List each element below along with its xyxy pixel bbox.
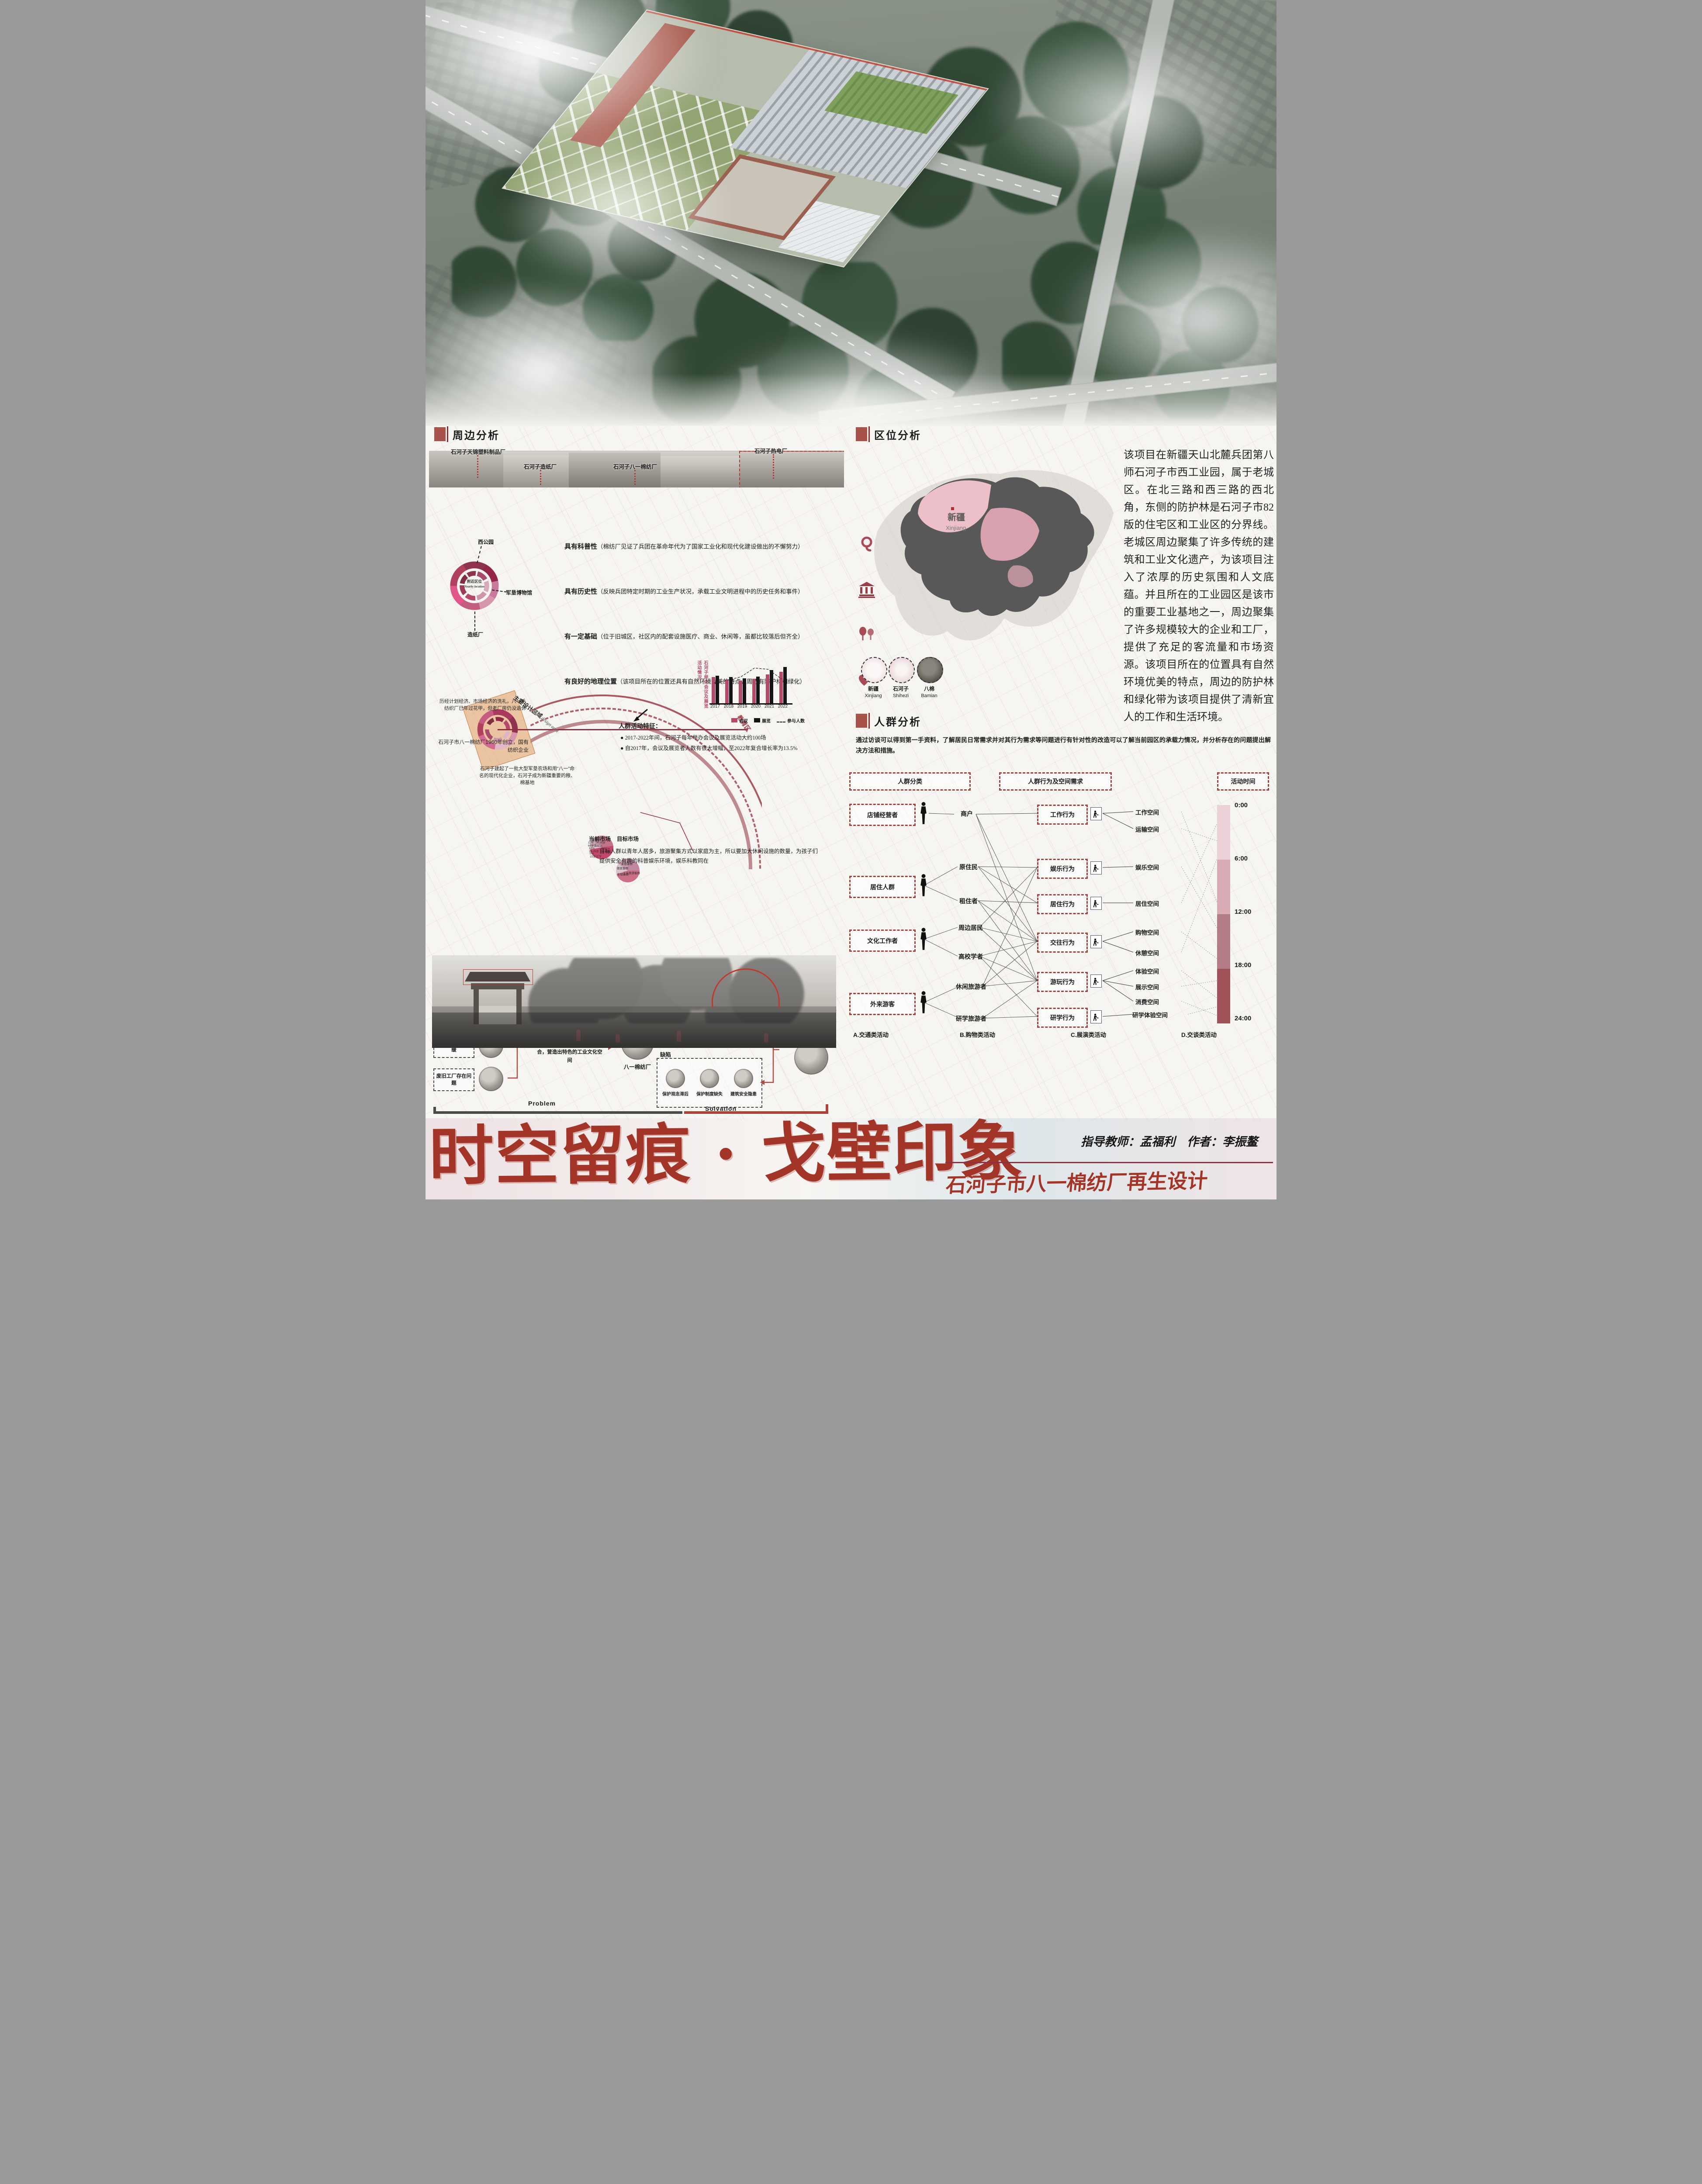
circle-label: 八棉Bamian	[914, 685, 944, 698]
header-square	[434, 427, 446, 441]
section-header-crowd: 人群分析	[856, 713, 921, 729]
space-transport: 运输空间	[1135, 825, 1159, 833]
skater-icon	[1090, 975, 1102, 988]
header-line	[868, 426, 870, 442]
map-label-cn: 新疆	[948, 512, 965, 522]
solvation-bar	[684, 1111, 828, 1114]
time-label: 6:00	[1235, 855, 1248, 862]
time-label: 18:00	[1235, 961, 1251, 969]
bayi-factory-label: 八一棉纺厂	[621, 1062, 654, 1071]
section-header-location: 区位分析	[856, 426, 921, 442]
person-icon	[918, 802, 929, 825]
role-merchant: 商户	[961, 809, 973, 818]
hero-fade	[425, 373, 1276, 426]
crowd-paragraph: 通过访谈可以得到第一手资料，了解居民日常需求并对其行为需求等问题进行有针对性的改…	[856, 736, 1271, 757]
crowd-flow-diagram: 人群分类 人群行为及空间需求 活动时间 店铺经营者 居住人群 文化工作者 外来游…	[849, 771, 1276, 1033]
subtitle-calligraphy: 石河子市八一棉纺厂再生设计	[945, 1165, 1209, 1198]
activity-photo-label: D.交谈类活动	[1181, 1030, 1217, 1039]
space-exhibition: 展示空间	[1135, 982, 1159, 991]
group-culture-workers: 文化工作者	[849, 930, 916, 952]
china-map: 新疆 Xinjiang	[860, 443, 1118, 649]
credit-advisor: 指导教师：孟福利	[1081, 1135, 1175, 1148]
weakness-item: 保护制度缺失	[694, 1069, 725, 1097]
factory-label: 石河子八一棉纺厂	[613, 462, 657, 470]
magnifier-icon	[1090, 1010, 1102, 1023]
legend-item: 会议	[731, 717, 748, 724]
legend-item: 参与人数	[777, 717, 805, 724]
id-card-icon	[1090, 897, 1102, 910]
circle-label: 新疆Xinjiang	[858, 685, 889, 698]
credit-author: 作者：李振鳌	[1187, 1135, 1258, 1148]
header-line	[447, 426, 448, 442]
scale-circle-bamian	[917, 657, 943, 683]
timeline-bar	[1217, 805, 1230, 1023]
space-consumption: 消费空间	[1135, 997, 1159, 1006]
bullet-item: 有良好的地理位置（该项目所在的位置还具有自然环境优美的特点，周边有防护林和绿化）	[564, 677, 853, 686]
time-label: 12:00	[1235, 908, 1251, 916]
bar-chart-legend: 会议 展览 参与人数	[731, 717, 805, 724]
behavior-entertainment: 娱乐行为	[1037, 859, 1088, 879]
weaknesses-label: 缺陷	[660, 1050, 671, 1058]
space-living: 居住空间	[1135, 899, 1159, 908]
factory-label: 石河子天锦塑料制品厂	[451, 447, 505, 456]
header-square	[856, 714, 867, 728]
role-nearby-resident: 周边居民	[958, 923, 983, 932]
space-shopping: 购物空间	[1135, 928, 1159, 936]
behavior-study: 研学行为	[1037, 1008, 1088, 1028]
behavior-work: 工作行为	[1037, 805, 1088, 825]
credits: 指导教师：孟福利 作者：李振鳌	[1081, 1132, 1258, 1149]
person-icon	[918, 874, 929, 897]
pie-slice-label: 工业旅游客群	[623, 872, 640, 875]
annotation-note: 石河子市八一棉纺厂1960年创立，国有纺织企业	[433, 738, 529, 754]
person-icon	[918, 927, 929, 951]
flow-header-behaviors: 人群行为及空间需求	[999, 772, 1112, 791]
space-entertainment: 娱乐空间	[1135, 863, 1159, 871]
header-line	[868, 713, 870, 729]
activity-photo-label: A.交通类活动	[853, 1030, 889, 1039]
group-tourists: 外来游客	[849, 993, 916, 1015]
ring-callout: 造纸厂	[467, 631, 483, 638]
gate-panorama-photo	[432, 955, 836, 1048]
pie-slice-label: 银发客群	[617, 867, 628, 870]
group-shop-owners: 店铺经营者	[849, 804, 916, 826]
ring-center-label: 附近区位 Nearby location	[456, 579, 493, 588]
problem-bar	[433, 1111, 682, 1114]
problem-photo	[479, 1067, 503, 1091]
bullet-item: 具有科普性（棉纺厂见证了兵团在革命年代为了国家工业化和现代化建设做出的不懈努力）	[564, 542, 853, 551]
activity-heading: 人群活动特征：	[619, 722, 661, 730]
space-experience: 体验空间	[1135, 967, 1159, 975]
activity-photo-label: B.购物类活动	[960, 1030, 995, 1039]
solvation-bar-tick	[826, 1104, 828, 1114]
main-title-calligraphy: 时空留痕 · 戈壁印象	[429, 1114, 1024, 1193]
annotation-note: 石河子建起了一批大型军垦农场和用“八一”命名的现代化企业，石河子成为新疆重要的粮…	[478, 765, 577, 786]
ring-callout: 西公园	[478, 538, 494, 546]
problem-bar-tick	[433, 1107, 436, 1114]
leader-line	[634, 470, 636, 485]
section-title: 人群分析	[874, 713, 921, 729]
circle-label: 石河子Shihezi	[886, 685, 916, 698]
bullet-item: 具有历史性（反映兵团特定时期的工业生产状况，承载工业文明进程中的历史任务和事件）	[564, 587, 853, 596]
callout-line	[474, 612, 476, 631]
factory-label: 石河子造纸厂	[524, 462, 557, 470]
flow-header-time: 活动时间	[1217, 772, 1269, 791]
problem-axis-label: Problem	[528, 1100, 556, 1107]
annotation-note: 历经计划经济、市场经济的洗礼，八一毛纺织厂已年过花甲，但老厂房仍没退休	[436, 698, 526, 712]
activity-photo-label: C.展演类活动	[1071, 1030, 1106, 1039]
section-title: 周边分析	[453, 427, 500, 442]
section-title: 区位分析	[874, 427, 921, 442]
time-label: 24:00	[1235, 1015, 1251, 1022]
role-native: 原住民	[959, 863, 978, 871]
cloud	[985, 26, 1264, 192]
nearby-ring-diagram: 附近区位 Nearby location	[448, 560, 501, 612]
section-header-surrounding: 周边分析	[434, 426, 500, 442]
header-square	[856, 427, 867, 441]
scale-circle-xinjiang	[861, 657, 887, 683]
role-leisure-tourist: 休闲旅游者	[956, 982, 986, 991]
factory-label: 石河子热电厂	[754, 446, 787, 455]
cloud	[504, 131, 731, 288]
role-study-tourist: 研学旅游者	[956, 1014, 986, 1023]
scale-circle-shihezi	[889, 657, 915, 683]
leader-line	[773, 454, 774, 479]
activity-bullet: ● 自2017年，会议及展览者人数有很大增幅，至2022年复合增长率为13.5%	[620, 743, 826, 752]
map-label-en: Xinjiang	[946, 525, 966, 531]
handshake-icon	[1090, 935, 1102, 948]
bar-chart-plot: 201720182019202020212022	[709, 661, 792, 705]
weakness-item: 建筑安全隐患	[728, 1069, 759, 1097]
bullet-item: 有一定基础（位于旧城区，社区内的配套设施医疗、商业、休闲等，虽都比较落后但齐全）	[564, 632, 853, 641]
behavior-living: 居住行为	[1037, 894, 1088, 914]
weaknesses-box: 保护观念滞后 保护制度缺失 建筑安全隐患	[657, 1058, 762, 1108]
person-icon	[918, 991, 929, 1014]
poster-board: 周边分析 石河子天锦塑料制品厂 石河子造纸厂 石河子八一棉纺厂 石河子热电厂 附…	[425, 0, 1276, 1199]
legend-item: 展览	[754, 717, 771, 724]
behavior-play: 游玩行为	[1037, 972, 1088, 992]
dancer-icon	[1090, 861, 1102, 874]
activity-bullet: ● 2017-2022年间，石河子每年举办会议及展览活动大约100场	[620, 733, 826, 741]
role-scholar: 高校学者	[958, 952, 983, 961]
pie-title: 当前市场	[589, 834, 611, 843]
space-work: 工作空间	[1135, 808, 1159, 816]
flow-header-groups: 人群分类	[849, 772, 971, 791]
time-label: 0:00	[1235, 802, 1248, 809]
location-paragraph: 该项目在新疆天山北麓兵团第八师石河子市西工业园，属于老城区。在北三路和西三路的西…	[1124, 446, 1274, 726]
truck-icon	[1090, 807, 1102, 820]
aerial-render	[425, 0, 1276, 426]
space-study-experience: 研学体验空间	[1132, 1010, 1168, 1019]
ring-callout: 军垦博物馆	[506, 589, 532, 596]
behavior-social: 交往行为	[1037, 933, 1088, 953]
leader-line	[540, 470, 541, 485]
leader-line	[477, 455, 478, 478]
market-note: 目标人群以青年人居多，旅游聚集方式以家庭为主，所以要加大休闲设施的数量，为孩子们…	[599, 847, 818, 866]
space-rest: 休憩空间	[1135, 948, 1159, 957]
role-renter: 租住者	[959, 897, 978, 905]
subtitle-rule	[945, 1162, 1273, 1163]
group-residents: 居住人群	[849, 876, 916, 898]
problem-box: 废旧工厂存在问题	[433, 1068, 474, 1091]
weakness-item: 保护观念滞后	[660, 1069, 691, 1097]
